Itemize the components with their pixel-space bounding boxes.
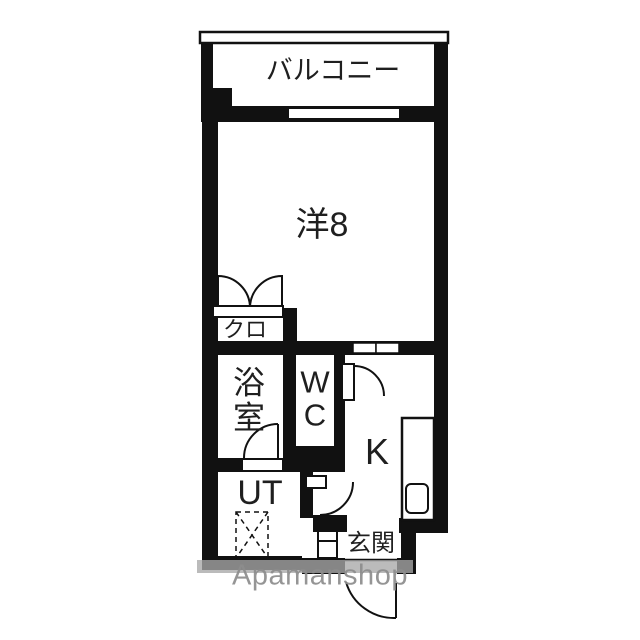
wall-below-toilet: [283, 446, 345, 472]
room-label-western-room: 洋8: [296, 208, 349, 242]
kitchen-sink-icon: [406, 484, 428, 513]
hall-door-track: [306, 476, 326, 488]
room-label-utility: UT: [237, 476, 282, 510]
room-divider-window-icon: [353, 343, 399, 353]
room-label-kitchen: K: [365, 434, 389, 470]
watermark-text: Apamanshop: [232, 560, 408, 593]
closet-door-track: [213, 306, 283, 317]
wall-room-divider: [218, 341, 434, 355]
window-icon: [288, 108, 400, 119]
kitchen-counter-icon: [402, 418, 434, 520]
hall-door-icon: [306, 476, 353, 515]
bath-door-track: [242, 459, 283, 471]
floorplan-graphic: [0, 0, 640, 640]
shoe-cabinet-icon: [318, 531, 337, 558]
room-label-closet: クロ: [223, 319, 267, 341]
wall-bath-toilet: [283, 355, 296, 458]
wall-vestibule-bottom: [313, 515, 347, 532]
washing-machine-space-icon: [236, 512, 268, 558]
wall-bath-bottom: [202, 458, 244, 472]
room-label-entrance: 玄関: [347, 532, 395, 556]
room-label-toilet: WC: [297, 366, 333, 433]
toilet-door-icon: [342, 364, 384, 400]
balcony-railing: [200, 32, 448, 43]
room-label-bath: 浴室: [231, 365, 268, 434]
closet-doors-icon: [213, 276, 283, 317]
wall-closet-right: [283, 308, 297, 343]
floor-plan: Apamanshop バルコニー 洋8 クロ 浴室 WC K UT 玄関: [0, 0, 640, 640]
room-label-balcony: バルコニー: [266, 58, 400, 85]
wall-left-exterior: [202, 112, 218, 570]
wall-right-exterior: [434, 44, 448, 533]
